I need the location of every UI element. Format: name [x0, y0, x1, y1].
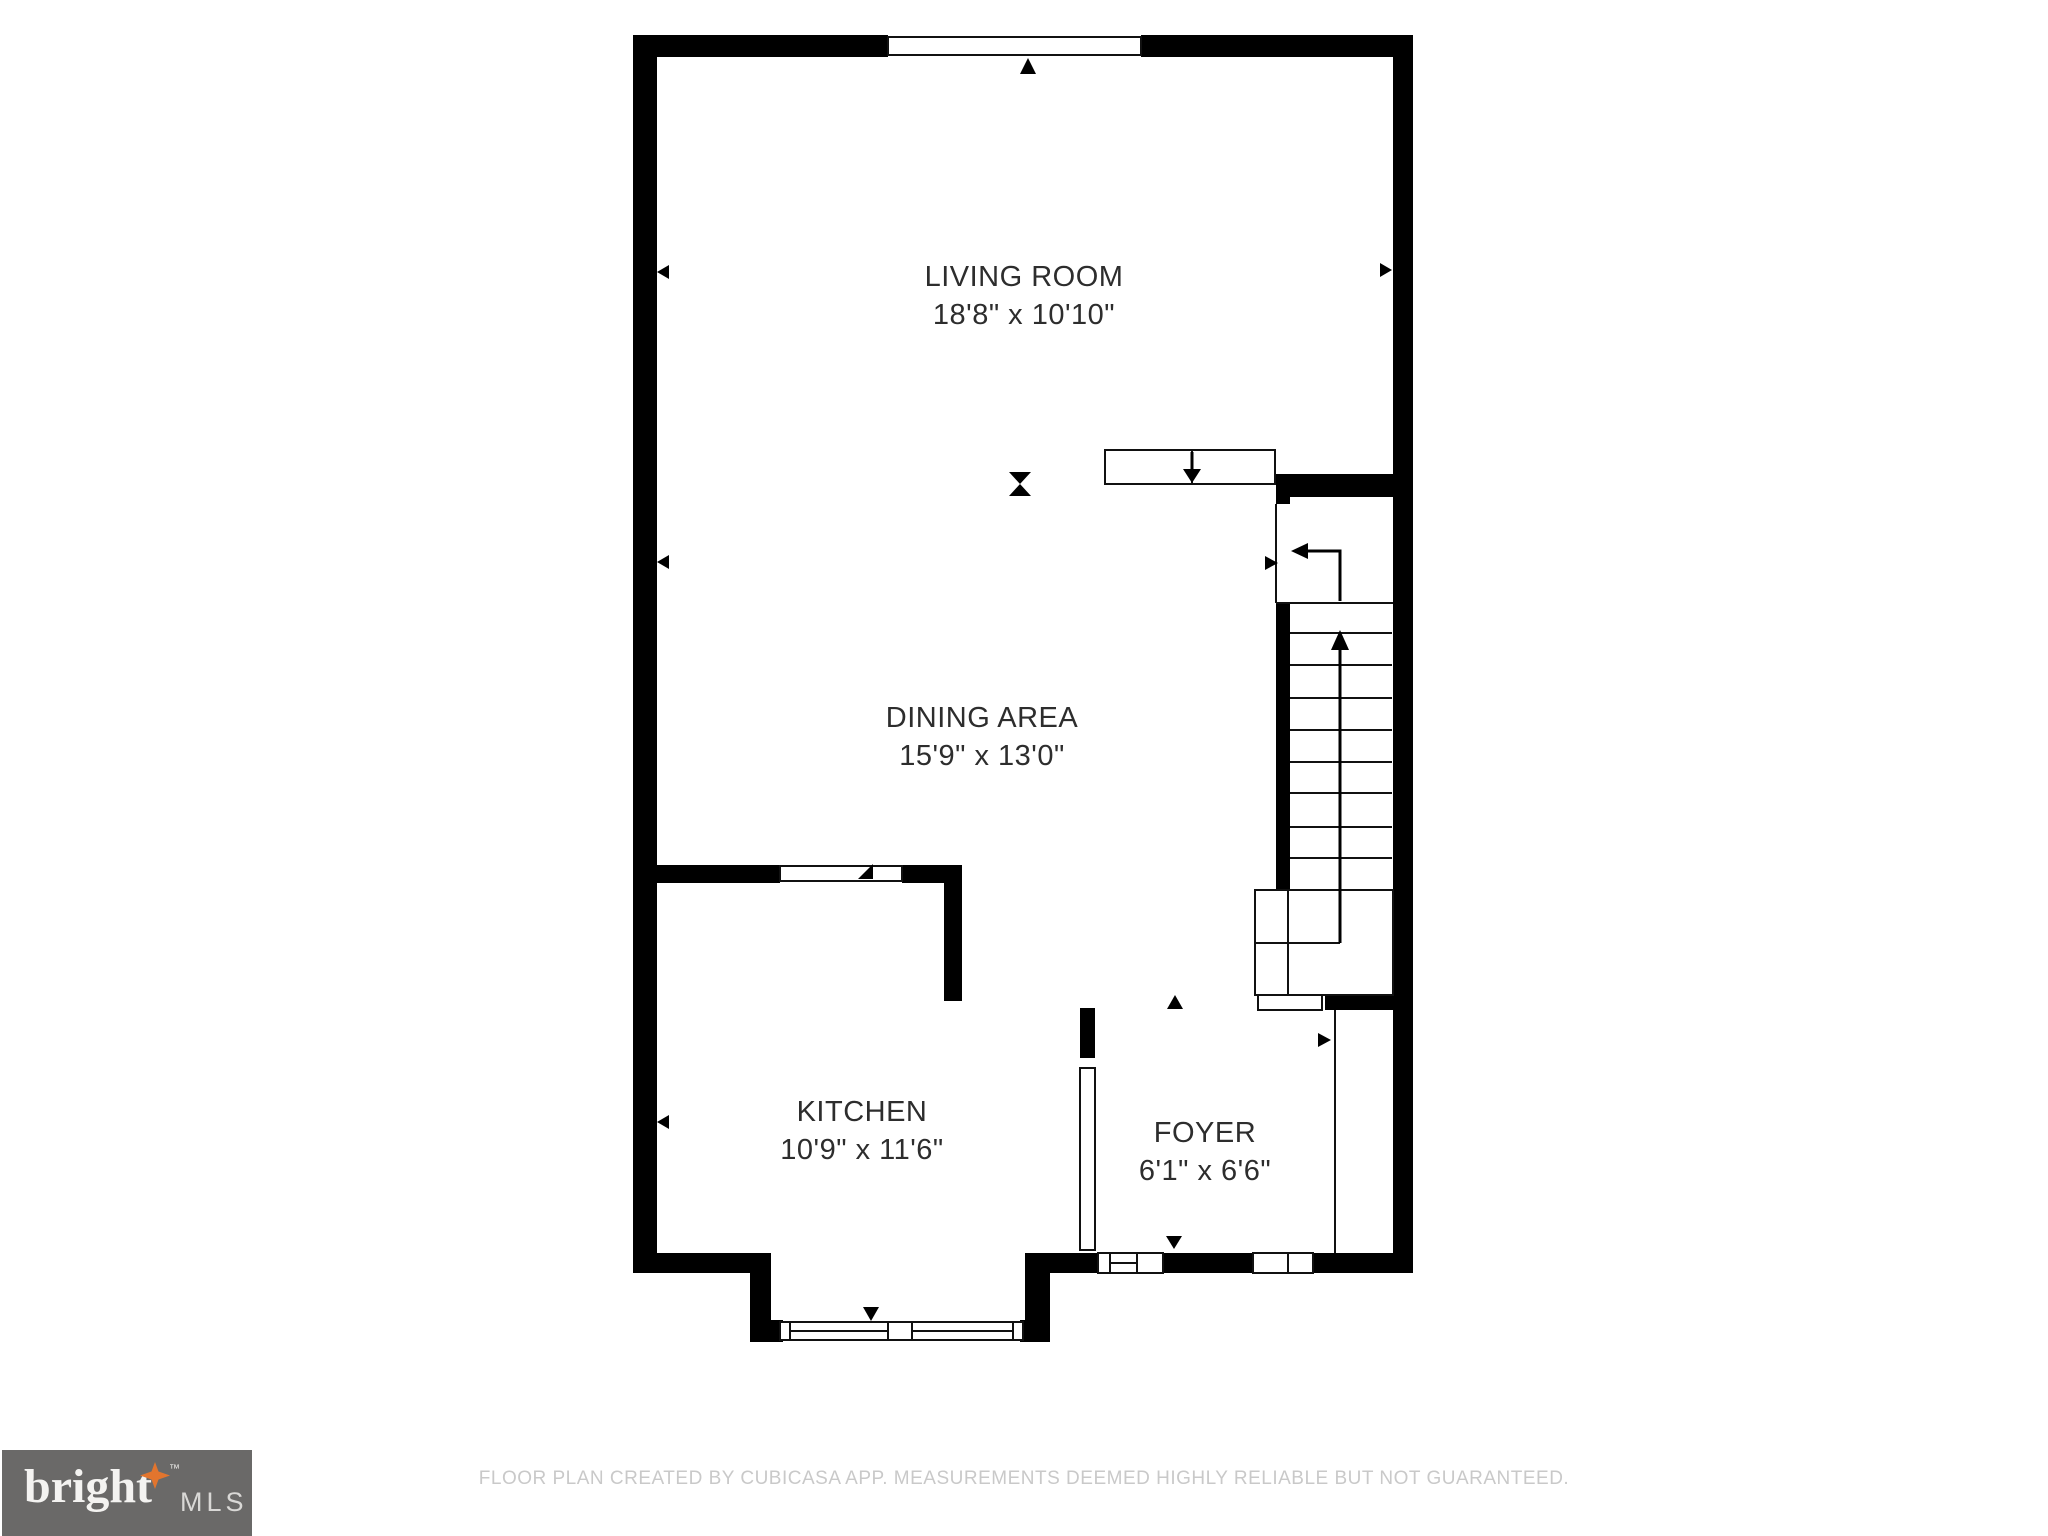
room-dimensions: 18'8" x 10'10" — [925, 296, 1124, 334]
wall-kitchen-bottom — [633, 1253, 771, 1273]
marker-closet-icon — [1318, 1033, 1331, 1047]
marker-right-wall-living-icon — [1380, 263, 1392, 277]
wall-bottom-right — [1313, 1253, 1413, 1273]
room-label-foyer: FOYER 6'1" x 6'6" — [1139, 1114, 1271, 1190]
floor-plan-page: LIVING ROOM 18'8" x 10'10" DINING AREA 1… — [0, 0, 2048, 1536]
foyer-door-leaf — [1080, 1068, 1095, 1250]
wall-left — [633, 35, 657, 1273]
wall-bottom-mid-2 — [1163, 1253, 1253, 1273]
room-dimensions: 10'9" x 11'6" — [780, 1131, 943, 1169]
wall-bay-right-step — [1025, 1253, 1050, 1323]
room-label-living-room: LIVING ROOM 18'8" x 10'10" — [925, 258, 1124, 334]
stair-bottom-landing — [1255, 890, 1393, 1010]
logo-star-icon — [140, 1462, 170, 1489]
marker-left-wall-living-icon — [657, 265, 669, 279]
logo-suffix-text: MLS — [180, 1487, 248, 1518]
wall-kitchen-divider-left — [633, 865, 780, 883]
wall-bay-bottom-right-cap — [1020, 1320, 1050, 1342]
wall-kitchen-right — [944, 865, 962, 1001]
wall-stair-left — [1276, 603, 1290, 890]
bay-window — [780, 1322, 1023, 1340]
marker-top-window-icon — [1020, 58, 1036, 74]
staircase — [1105, 450, 1393, 1010]
hourglass-marker-icon — [1009, 472, 1031, 496]
marker-front-door-icon — [1166, 1236, 1182, 1249]
wall-mid-right-stub — [1276, 474, 1290, 504]
living-room-window — [888, 37, 1141, 55]
wall-foyer-divider-stub — [1080, 1008, 1095, 1058]
room-label-dining-area: DINING AREA 15'9" x 13'0" — [886, 699, 1078, 775]
wall-top-right — [1141, 35, 1413, 57]
room-name: LIVING ROOM — [925, 258, 1124, 296]
stairs-turn-arrow-icon — [1291, 543, 1340, 601]
foyer-window — [1098, 1253, 1163, 1273]
footer-disclaimer: FLOOR PLAN CREATED BY CUBICASA APP. MEAS… — [0, 1468, 2048, 1490]
wall-bay-left-step — [750, 1273, 771, 1342]
room-name: DINING AREA — [886, 699, 1078, 737]
wall-mid-right — [1278, 474, 1413, 497]
marker-foyer-opening-icon — [1167, 995, 1183, 1009]
thin-boundaries — [1276, 504, 1393, 1253]
room-dimensions: 6'1" x 6'6" — [1139, 1152, 1271, 1190]
wall-stair-bottom-stub — [1325, 995, 1413, 1010]
marker-left-wall-dining-icon — [657, 555, 669, 569]
marker-bay-window-icon — [863, 1307, 879, 1321]
room-name: KITCHEN — [780, 1093, 943, 1131]
exterior-walls — [633, 35, 1413, 1342]
room-dimensions: 15'9" x 13'0" — [886, 737, 1078, 775]
bright-mls-logo: bright ™ MLS — [2, 1450, 252, 1536]
logo-trademark: ™ — [169, 1463, 180, 1475]
front-door — [1253, 1253, 1313, 1273]
kitchen-pass-through — [780, 866, 902, 881]
room-name: FOYER — [1139, 1114, 1271, 1152]
wall-right — [1393, 35, 1413, 1273]
wall-top-left — [633, 35, 888, 57]
logo-brand-text: bright — [24, 1460, 152, 1514]
wall-bottom-mid-1 — [1050, 1253, 1098, 1273]
room-label-kitchen: KITCHEN 10'9" x 11'6" — [780, 1093, 943, 1169]
marker-left-wall-kitchen-icon — [657, 1115, 669, 1129]
